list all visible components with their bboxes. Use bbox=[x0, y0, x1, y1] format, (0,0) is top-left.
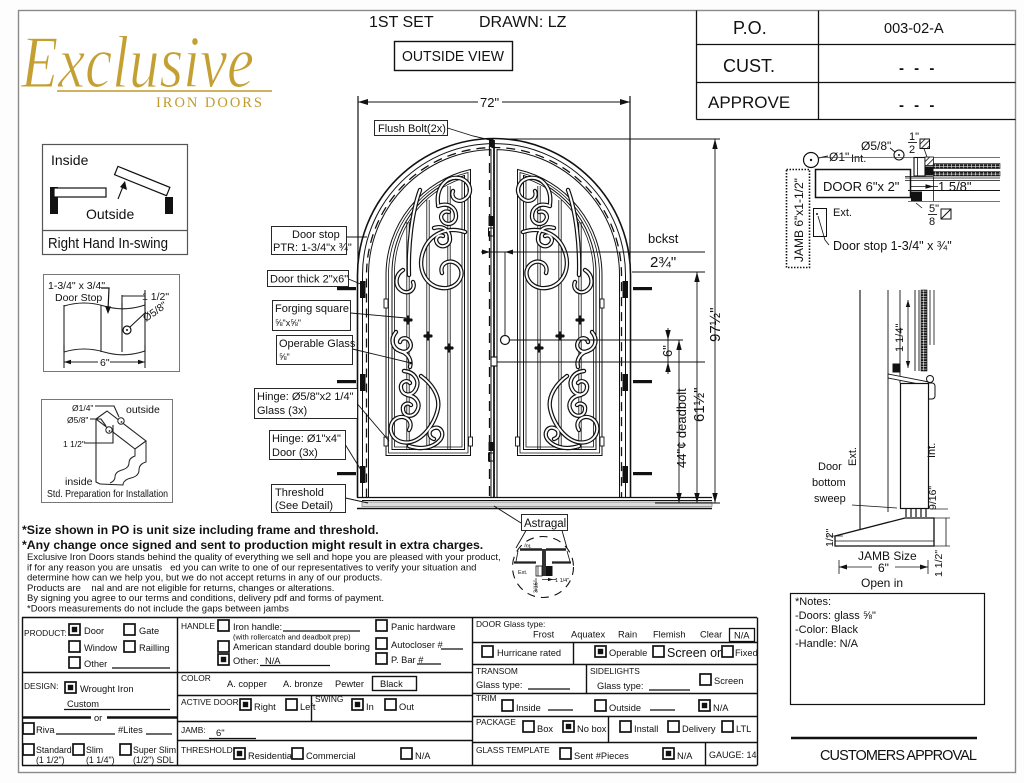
svg-text:Iron handle:: Iron handle: bbox=[233, 622, 282, 632]
svg-text:Glass type:: Glass type: bbox=[476, 680, 523, 690]
svg-text:Box: Box bbox=[537, 724, 553, 734]
svg-text:Right Hand In-swing: Right Hand In-swing bbox=[48, 236, 168, 252]
svg-text:JAMB:: JAMB: bbox=[181, 725, 206, 735]
svg-text:Frost: Frost bbox=[533, 630, 555, 640]
svg-text:THRESHOLD: THRESHOLD bbox=[181, 745, 233, 755]
svg-text:⅝": ⅝" bbox=[279, 352, 290, 362]
svg-text:PACKAGE: PACKAGE bbox=[476, 717, 516, 727]
svg-text:Commercial: Commercial bbox=[306, 751, 356, 761]
svg-text:⅝"x⅝": ⅝"x⅝" bbox=[275, 318, 301, 328]
svg-text:ACTIVE DOOR: ACTIVE DOOR bbox=[181, 697, 239, 707]
svg-text:sweep: sweep bbox=[814, 493, 846, 505]
svg-text:IRON DOORS: IRON DOORS bbox=[156, 95, 262, 111]
svg-text:6": 6" bbox=[660, 345, 675, 357]
svg-text:*Size shown in PO is unit size: *Size shown in PO is unit size including… bbox=[22, 523, 379, 537]
svg-text:Right: Right bbox=[254, 702, 276, 712]
svg-text:GLASS TEMPLATE: GLASS TEMPLATE bbox=[476, 745, 550, 755]
svg-text:Hurricane rated: Hurricane rated bbox=[497, 648, 561, 658]
svg-text:Railling: Railling bbox=[139, 643, 170, 653]
svg-text:No box: No box bbox=[577, 724, 607, 734]
svg-text:3/16": 3/16" bbox=[534, 580, 540, 593]
svg-text:Screen or: Screen or bbox=[667, 646, 721, 660]
svg-text:97½": 97½" bbox=[707, 307, 724, 342]
svg-text:Wrought Iron: Wrought Iron bbox=[80, 684, 134, 694]
svg-text:(1 1/4"): (1 1/4") bbox=[86, 755, 115, 765]
svg-text:Door thick 2"x6": Door thick 2"x6" bbox=[270, 274, 348, 286]
svg-text:OUTSIDE VIEW: OUTSIDE VIEW bbox=[402, 48, 505, 65]
svg-text:Install: Install bbox=[634, 724, 658, 734]
svg-text:Door (3x): Door (3x) bbox=[272, 447, 318, 459]
svg-text:DESIGN:: DESIGN: bbox=[24, 681, 58, 691]
svg-text:DOOR Glass type:: DOOR Glass type: bbox=[476, 619, 545, 629]
svg-text:A. copper: A. copper bbox=[227, 679, 267, 689]
svg-text:1/2": 1/2" bbox=[824, 528, 836, 547]
svg-text:Black: Black bbox=[380, 679, 403, 689]
svg-text:Hinge: Ø1"x4": Hinge: Ø1"x4" bbox=[272, 433, 341, 445]
svg-text:N/A: N/A bbox=[415, 751, 431, 761]
svg-text:Int.: Int. bbox=[851, 153, 866, 165]
svg-text:In: In bbox=[366, 702, 374, 712]
svg-text:6": 6" bbox=[100, 357, 110, 369]
svg-text:(1 1/2"): (1 1/2") bbox=[36, 755, 65, 765]
svg-text:Gate: Gate bbox=[139, 626, 159, 636]
svg-text:GAUGE: 14: GAUGE: 14 bbox=[709, 750, 757, 760]
svg-text:2¾": 2¾" bbox=[650, 254, 676, 271]
svg-text:*Notes:: *Notes: bbox=[795, 596, 831, 608]
svg-text:P.O.: P.O. bbox=[733, 18, 767, 38]
svg-text:Out: Out bbox=[399, 702, 414, 712]
svg-text:(1/2") SDL: (1/2") SDL bbox=[133, 755, 174, 765]
svg-text:Threshold: Threshold bbox=[275, 487, 324, 499]
svg-text:- - -: - - - bbox=[899, 60, 937, 77]
svg-text:003-02-A: 003-02-A bbox=[884, 21, 944, 37]
svg-text:#Lites: #Lites bbox=[118, 725, 143, 735]
svg-text:CUSTOMERS APPROVAL: CUSTOMERS APPROVAL bbox=[820, 748, 977, 764]
svg-text:Ø1/4": Ø1/4" bbox=[72, 403, 93, 413]
svg-text:Outside: Outside bbox=[86, 206, 134, 222]
svg-text:1 1/2": 1 1/2" bbox=[933, 550, 945, 577]
svg-text:inside: inside bbox=[65, 476, 93, 488]
svg-text:Riva: Riva bbox=[36, 725, 55, 735]
svg-text:Ø5/8": Ø5/8" bbox=[861, 139, 891, 153]
svg-text:outside: outside bbox=[126, 404, 160, 416]
svg-text:Outside: Outside bbox=[609, 703, 641, 713]
svg-text:JAMB 6"x1-1/2": JAMB 6"x1-1/2" bbox=[792, 178, 806, 262]
svg-text:DRAWN: LZ: DRAWN: LZ bbox=[479, 14, 567, 31]
svg-text:Door: Door bbox=[84, 626, 104, 636]
svg-text:-Color: Black: -Color: Black bbox=[795, 624, 858, 636]
svg-text:(with rollercatch and deadbolt: (with rollercatch and deadbolt prep) bbox=[233, 633, 351, 642]
svg-text:CUST.: CUST. bbox=[723, 56, 775, 76]
svg-text:COLOR: COLOR bbox=[181, 673, 211, 683]
svg-text:6": 6" bbox=[878, 561, 889, 575]
svg-text:N/A: N/A bbox=[734, 631, 750, 641]
svg-text:Fixed: Fixed bbox=[735, 648, 758, 658]
svg-text:SIDELIGHTS: SIDELIGHTS bbox=[590, 666, 640, 676]
svg-text:HANDLE: HANDLE bbox=[181, 621, 215, 631]
svg-text:Std. Preparation for Installat: Std. Preparation for Installation bbox=[47, 488, 168, 500]
svg-text:Inside: Inside bbox=[516, 703, 541, 713]
svg-text:-Doors: glass ⅝": -Doors: glass ⅝" bbox=[795, 610, 876, 622]
svg-text:Open in: Open in bbox=[861, 576, 903, 590]
svg-text:DOOR 6"x 2": DOOR 6"x 2" bbox=[823, 179, 900, 194]
svg-text:Panic hardware: Panic hardware bbox=[391, 622, 456, 632]
svg-text:Aquatex: Aquatex bbox=[571, 630, 605, 640]
svg-text:Other:: Other: bbox=[233, 656, 259, 666]
svg-text:Rain: Rain bbox=[618, 630, 637, 640]
svg-text:Ø1": Ø1" bbox=[829, 150, 849, 164]
svg-text:Door Stop: Door Stop bbox=[55, 292, 102, 304]
svg-text:61½": 61½" bbox=[691, 387, 708, 422]
svg-text:Int.: Int. bbox=[926, 443, 938, 458]
svg-text:Window: Window bbox=[84, 643, 117, 653]
svg-text:PRODUCT:: PRODUCT: bbox=[24, 628, 67, 638]
svg-text:Pewter: Pewter bbox=[335, 679, 364, 689]
svg-text:Inside: Inside bbox=[51, 152, 89, 168]
svg-text:APPROVE: APPROVE bbox=[708, 93, 790, 112]
svg-text:1 1/4": 1 1/4" bbox=[555, 578, 569, 584]
svg-text:44"¢ deadbolt: 44"¢ deadbolt bbox=[674, 388, 689, 468]
svg-text:Flemish: Flemish bbox=[653, 630, 686, 640]
svg-text:1": 1" bbox=[909, 131, 919, 143]
svg-text:Door stop: Door stop bbox=[292, 229, 340, 241]
svg-text:- - -: - - - bbox=[899, 97, 937, 114]
svg-text:TRANSOM: TRANSOM bbox=[476, 666, 518, 676]
svg-text:*Doors measurements do not inc: *Doors measurements do not include the g… bbox=[27, 604, 289, 615]
svg-text:N/A: N/A bbox=[677, 751, 693, 761]
svg-text:bckst: bckst bbox=[648, 231, 679, 246]
svg-text:Residential: Residential bbox=[248, 751, 294, 761]
svg-text:Door: Door bbox=[818, 461, 842, 473]
svg-text:6": 6" bbox=[216, 728, 225, 739]
svg-text:LTL: LTL bbox=[736, 724, 751, 734]
svg-text:Operable Glass: Operable Glass bbox=[279, 338, 356, 350]
svg-text:1 5/8": 1 5/8" bbox=[938, 179, 972, 194]
svg-text:Glass (3x): Glass (3x) bbox=[257, 405, 307, 417]
svg-text:bottom: bottom bbox=[812, 477, 846, 489]
svg-text:PTR: 1-3/4"x ¾": PTR: 1-3/4"x ¾" bbox=[273, 242, 352, 254]
svg-text:Ext.: Ext. bbox=[518, 570, 528, 576]
svg-text:Super Slim: Super Slim bbox=[133, 745, 176, 755]
svg-text:Flush Bolt(2x): Flush Bolt(2x) bbox=[378, 123, 446, 135]
svg-text:Clear: Clear bbox=[700, 630, 722, 640]
svg-text:Slim: Slim bbox=[86, 745, 103, 755]
svg-text:Glass type:: Glass type: bbox=[597, 681, 644, 691]
svg-text:Screen: Screen bbox=[714, 676, 743, 686]
svg-text:TRIM: TRIM bbox=[476, 693, 496, 703]
svg-text:1 1/2": 1 1/2" bbox=[142, 291, 169, 303]
svg-text:Ext.: Ext. bbox=[847, 447, 859, 466]
svg-text:Operable: Operable bbox=[609, 648, 647, 658]
svg-text:Ext.: Ext. bbox=[833, 207, 852, 219]
svg-text:N/A: N/A bbox=[265, 656, 281, 666]
svg-text:SWING: SWING bbox=[315, 694, 343, 704]
svg-text:1 1/4": 1 1/4" bbox=[894, 324, 906, 352]
svg-text:72": 72" bbox=[480, 95, 499, 110]
svg-text:2: 2 bbox=[909, 144, 915, 156]
svg-text:Custom: Custom bbox=[67, 699, 99, 709]
svg-text:Hinge: Ø5/8"x2 1/4": Hinge: Ø5/8"x2 1/4" bbox=[257, 391, 354, 403]
svg-text:5": 5" bbox=[929, 203, 939, 215]
svg-text:Other: Other bbox=[84, 659, 107, 669]
svg-text:(See Detail): (See Detail) bbox=[275, 500, 333, 512]
svg-text:1ST SET: 1ST SET bbox=[369, 14, 434, 31]
svg-text:N/A: N/A bbox=[713, 703, 729, 713]
svg-text:American standard double borin: American standard double boring bbox=[233, 642, 370, 652]
svg-text:Autocloser #: Autocloser # bbox=[391, 640, 444, 650]
svg-text:Forging square: Forging square bbox=[275, 303, 349, 315]
svg-text:A. bronze: A. bronze bbox=[283, 679, 323, 689]
svg-text:8: 8 bbox=[929, 216, 935, 228]
svg-text:9/16": 9/16" bbox=[927, 486, 939, 510]
svg-text:1 1/2": 1 1/2" bbox=[63, 439, 85, 449]
svg-text:1-3/4" x 3/4": 1-3/4" x 3/4" bbox=[48, 280, 105, 292]
svg-text:Ø5/8": Ø5/8" bbox=[67, 415, 88, 425]
svg-text:Sent #Pieces: Sent #Pieces bbox=[574, 751, 629, 761]
svg-text:*Any change once signed and se: *Any change once signed and sent to prod… bbox=[22, 538, 483, 552]
svg-text:Door stop 1-3/4" x ¾": Door stop 1-3/4" x ¾" bbox=[833, 239, 952, 253]
svg-text:Standard: Standard bbox=[36, 745, 72, 755]
svg-text:Delivery: Delivery bbox=[682, 724, 716, 734]
svg-text:-Handle: N/A: -Handle: N/A bbox=[795, 638, 859, 650]
svg-text:Astragal: Astragal bbox=[524, 518, 566, 530]
svg-text:Left: Left bbox=[300, 702, 316, 712]
svg-text:or: or bbox=[94, 713, 102, 723]
